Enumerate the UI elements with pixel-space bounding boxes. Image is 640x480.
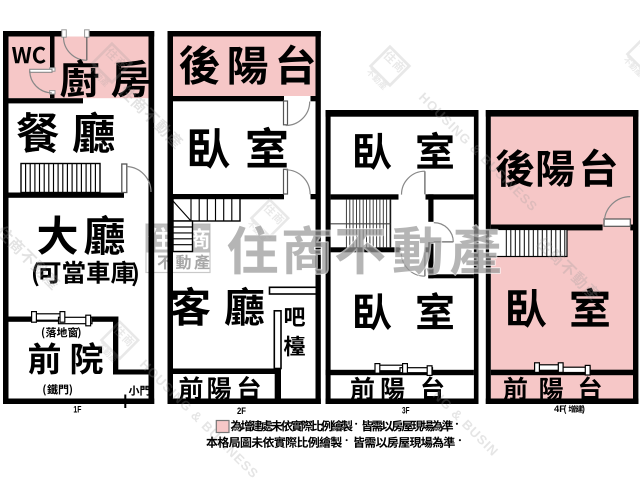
svg-text:4F: 4F — [554, 404, 565, 415]
svg-text:2F: 2F — [237, 406, 246, 417]
svg-text:3F: 3F — [402, 406, 410, 417]
svg-text:1F: 1F — [73, 405, 81, 416]
